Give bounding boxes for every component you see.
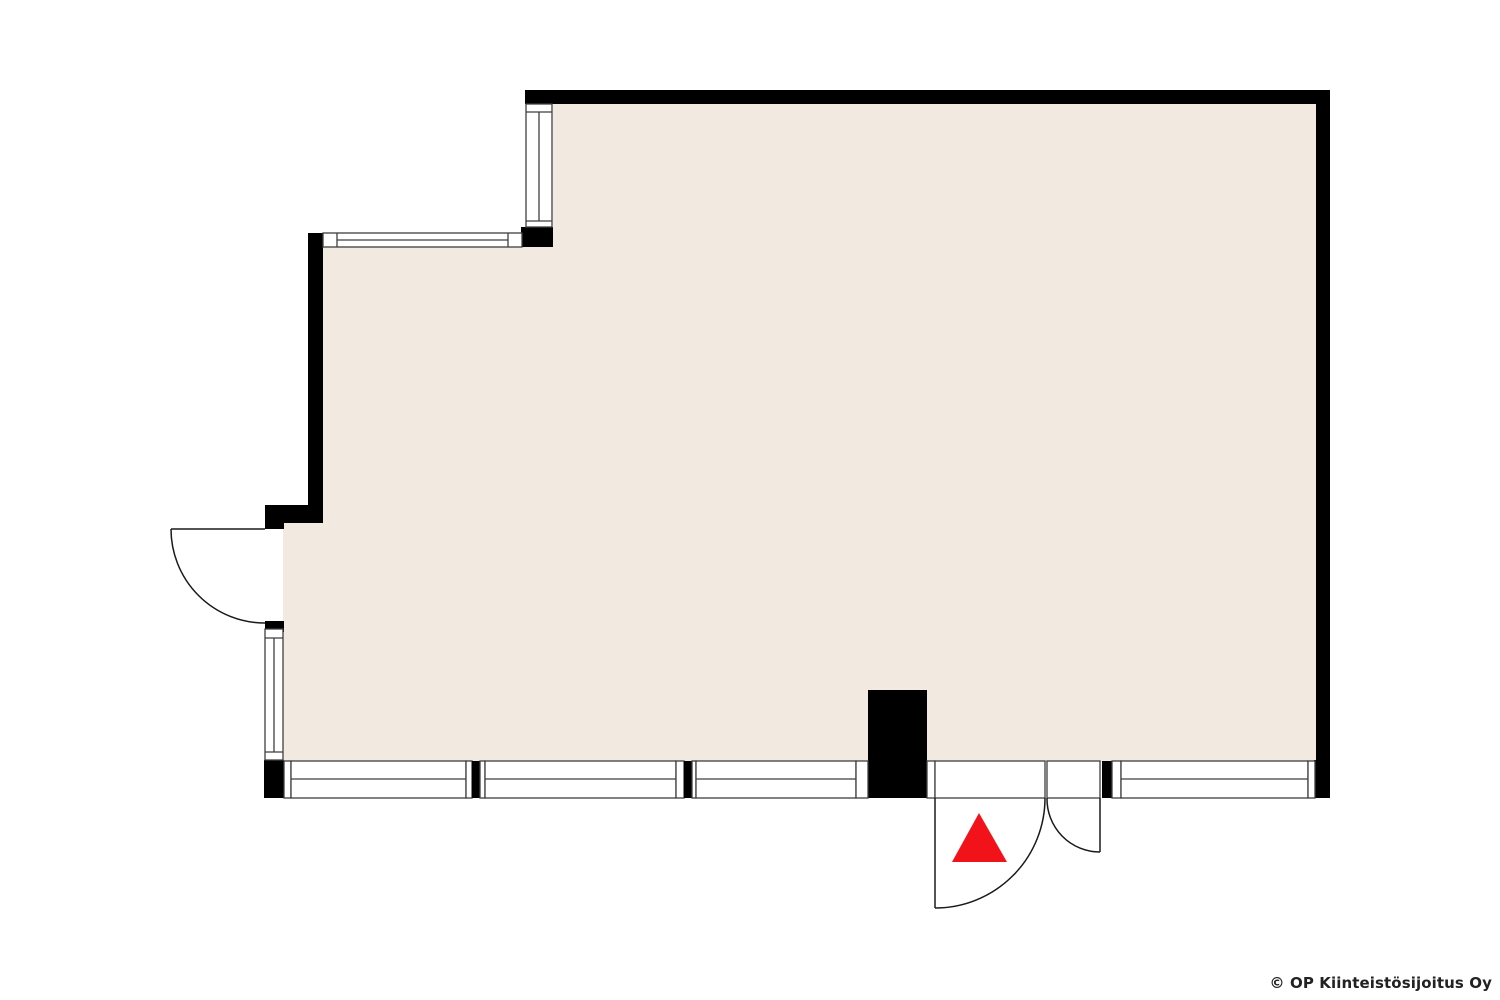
door-entrance-side-swing-arc xyxy=(1047,798,1100,852)
jamb-pillar-right xyxy=(927,761,935,798)
wall-step-lower xyxy=(265,505,323,523)
door-left-swing-arc xyxy=(171,529,265,623)
entrance-marker-triangle xyxy=(952,813,1007,862)
mullion-3 xyxy=(1102,761,1112,798)
mullion-2 xyxy=(684,761,692,798)
jamb-1a xyxy=(466,761,472,798)
jamb-1b xyxy=(480,761,485,798)
floorplan-svg xyxy=(0,0,1500,1000)
jamb-3 xyxy=(1112,761,1121,798)
floorplan-page: © OP Kiinteistösijoitus Oy xyxy=(0,0,1500,1000)
wall-right-bottom-corner xyxy=(1314,760,1330,798)
wall-corner-upper-window-base xyxy=(521,227,553,247)
jamb-pillar-left xyxy=(856,761,868,798)
floor-area-lower xyxy=(283,523,1316,762)
wall-right xyxy=(1316,90,1330,798)
wall-left-above-door xyxy=(265,521,284,529)
wall-upper-left xyxy=(308,233,323,523)
floor-area-middle xyxy=(323,246,1316,524)
wall-left-bottom-corner xyxy=(264,760,284,798)
entrance-opening-side xyxy=(1047,761,1100,798)
entrance-opening-main xyxy=(935,761,1045,798)
jamb-left xyxy=(284,761,291,798)
jamb-right xyxy=(1308,761,1315,798)
mullion-1 xyxy=(472,761,480,798)
wall-entrance-pillar xyxy=(868,690,927,798)
floor-area-top xyxy=(553,103,1316,248)
jamb-2a xyxy=(676,761,684,798)
wall-top xyxy=(525,90,1330,104)
copyright-text: © OP Kiinteistösijoitus Oy xyxy=(1270,974,1492,992)
